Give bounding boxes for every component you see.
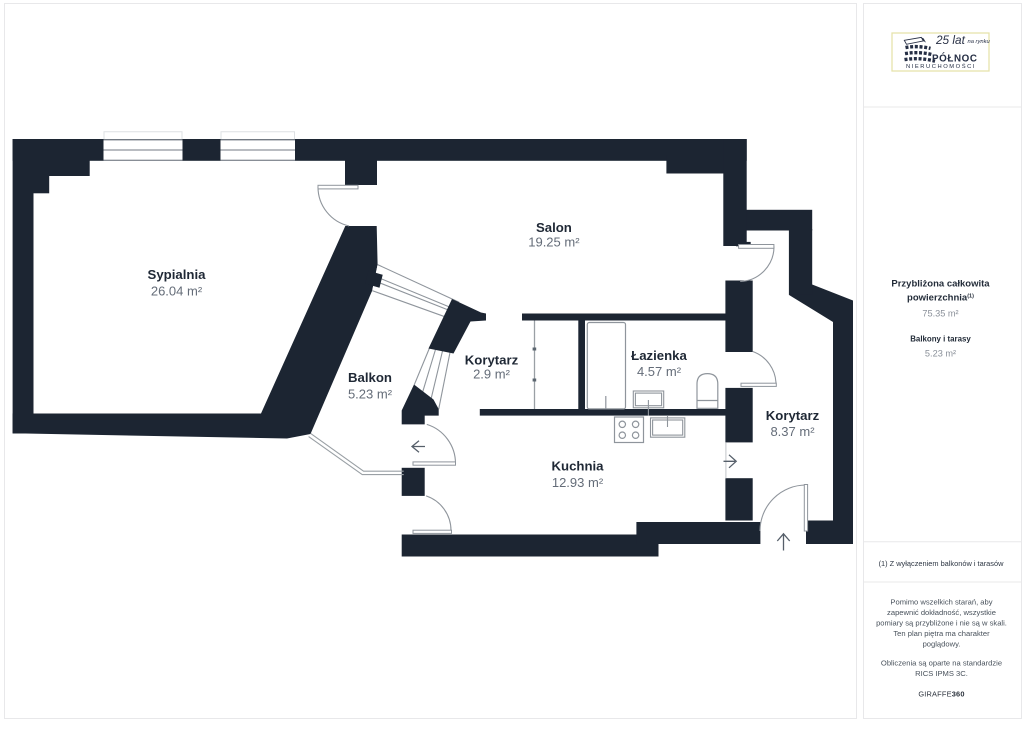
svg-text:Łazienka: Łazienka bbox=[631, 348, 687, 363]
svg-text:(1) Z wyłączeniem balkonów i t: (1) Z wyłączeniem balkonów i tarasów bbox=[879, 559, 1005, 568]
svg-text:5.23 m²: 5.23 m² bbox=[348, 386, 393, 401]
svg-text:RICS IPMS 3C.: RICS IPMS 3C. bbox=[915, 669, 968, 678]
svg-text:Obliczenia są oparte na standa: Obliczenia są oparte na standardzie bbox=[881, 659, 1002, 668]
svg-text:Kuchnia: Kuchnia bbox=[551, 458, 604, 473]
svg-text:4.57 m²: 4.57 m² bbox=[637, 364, 682, 379]
svg-text:Korytarz: Korytarz bbox=[766, 408, 820, 423]
svg-text:na rynku: na rynku bbox=[968, 39, 991, 45]
svg-text:Sypialnia: Sypialnia bbox=[148, 267, 207, 282]
svg-text:75.35 m²: 75.35 m² bbox=[922, 309, 958, 319]
svg-text:Przybliżona całkowita: Przybliżona całkowita bbox=[891, 279, 990, 290]
svg-text:Salon: Salon bbox=[536, 220, 572, 235]
svg-text:Korytarz: Korytarz bbox=[465, 353, 519, 368]
svg-text:Balkony i tarasy: Balkony i tarasy bbox=[910, 335, 971, 344]
svg-text:2.9 m²: 2.9 m² bbox=[473, 366, 511, 381]
svg-text:zapewnić dokładność, wszystkie: zapewnić dokładność, wszystkie bbox=[887, 608, 996, 617]
svg-text:5.23 m²: 5.23 m² bbox=[925, 349, 956, 359]
svg-text:pomiary są przybliżone i nie s: pomiary są przybliżone i nie są w skali. bbox=[876, 619, 1007, 628]
svg-text:Ten plan piętra ma charakter: Ten plan piętra ma charakter bbox=[893, 629, 990, 638]
svg-text:powierzchnia(1): powierzchnia(1) bbox=[907, 293, 974, 304]
svg-text:poglądowy.: poglądowy. bbox=[923, 640, 961, 649]
svg-text:25 lat: 25 lat bbox=[935, 33, 966, 47]
svg-text:12.93 m²: 12.93 m² bbox=[552, 475, 604, 490]
svg-text:NIERUCHOMOŚCI: NIERUCHOMOŚCI bbox=[906, 62, 976, 70]
svg-text:19.25 m²: 19.25 m² bbox=[528, 235, 580, 250]
svg-text:Pomimo wszelkich starań, aby: Pomimo wszelkich starań, aby bbox=[890, 598, 992, 607]
svg-text:Balkon: Balkon bbox=[348, 370, 392, 385]
svg-text:8.37 m²: 8.37 m² bbox=[770, 424, 815, 439]
svg-text:GIRAFFE360: GIRAFFE360 bbox=[918, 689, 964, 698]
svg-text:PÓŁNOC: PÓŁNOC bbox=[932, 53, 978, 65]
svg-text:26.04 m²: 26.04 m² bbox=[151, 284, 203, 299]
